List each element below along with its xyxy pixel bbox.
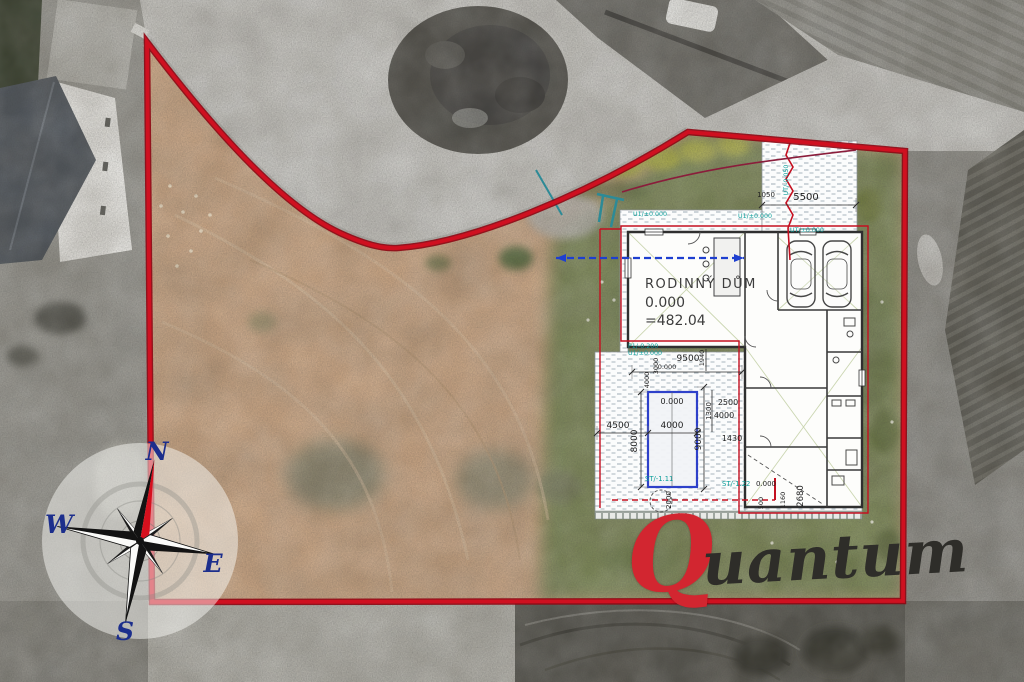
dim-label: 9000: [694, 427, 704, 450]
dim-label: 1940: [698, 350, 706, 367]
dim-label: 9500: [677, 354, 700, 364]
compass-west-label: W: [45, 510, 76, 539]
dim-label: 2500: [718, 398, 738, 407]
driveway: [762, 141, 857, 232]
elevation-mark: ST/-1.11: [645, 475, 673, 483]
elevation-mark: UT/-0.050: [783, 165, 790, 196]
pool: [648, 392, 697, 487]
elevation-mark: ST/-1.22: [722, 480, 750, 488]
dim-label: 1300: [705, 402, 713, 420]
house-level: 0.000: [645, 295, 757, 311]
elevation-mark: U1/±0.000: [633, 211, 667, 218]
dim-label: 500: [757, 497, 765, 509]
dim-label: 1050: [757, 191, 775, 199]
house-name: RODINNÝ DŮM: [645, 277, 757, 292]
garage-car-2: [823, 241, 851, 307]
dim-label: 1160: [779, 492, 787, 509]
dim-label: 0.000: [756, 480, 776, 488]
dim-label: 0.000: [658, 363, 677, 371]
dim-label: 0.000: [661, 397, 684, 406]
logo-text: uantum: [701, 521, 971, 595]
house-label: RODINNÝ DŮM 0.000 =482.04: [645, 277, 757, 329]
aerial-site-photo: N W E S 5500 1050 9500 0.000 4000 3000 1…: [0, 0, 1024, 682]
elevation-mark: P1/-0.200: [628, 343, 658, 350]
compass-north-label: N: [145, 437, 170, 466]
dim-label: 8000: [630, 429, 640, 452]
dim-label: 4000: [643, 372, 651, 389]
elevation-mark: UT/±0.000: [790, 227, 824, 234]
compass-east-label: E: [202, 549, 223, 578]
elevation-mark: U1/±0.000: [628, 350, 662, 357]
dim-label: 1430: [722, 434, 742, 443]
dim-label: 2680: [796, 485, 806, 507]
dim-label: 4500: [607, 421, 630, 431]
dim-label: 5500: [793, 192, 818, 203]
garage-car-1: [787, 241, 815, 307]
dim-label: 3000: [652, 358, 660, 375]
elevation-mark: U1/±0.000: [738, 213, 772, 220]
house-altitude: =482.04: [645, 313, 757, 329]
dim-label: 4000: [714, 411, 734, 420]
dim-label: 4000: [661, 421, 684, 431]
compass-south-label: S: [116, 617, 134, 646]
